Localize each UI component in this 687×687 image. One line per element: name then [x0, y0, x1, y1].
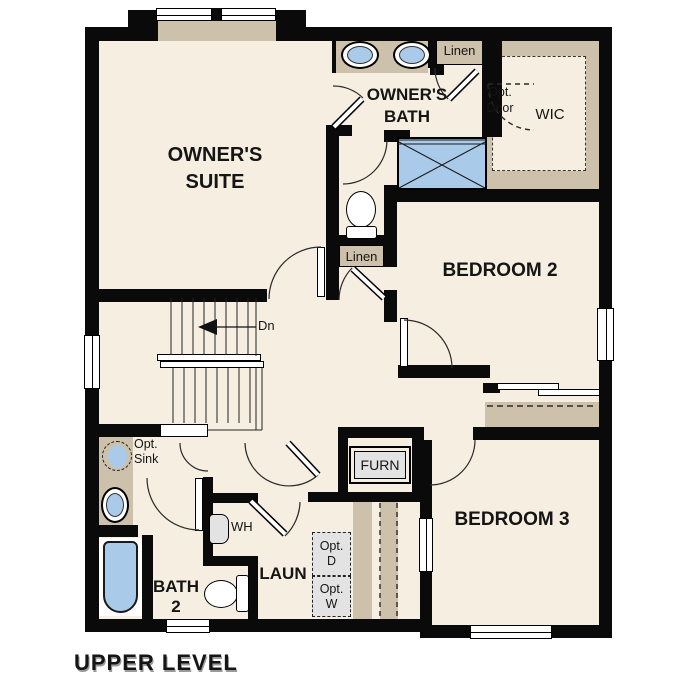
- vanity-sink-1-basin: [347, 46, 373, 64]
- wall-right-upper: [599, 27, 612, 308]
- laundry-chase-left: [353, 502, 372, 619]
- wall-bedroom2-south: [398, 365, 490, 378]
- opt-washer-label: Opt. W: [320, 582, 344, 612]
- furnace-box: FURN: [349, 446, 411, 484]
- owners-suite-label: OWNER'S SUITE: [110, 142, 320, 196]
- bedroom2-closet-shelf: [485, 402, 599, 427]
- bath2-sink-basin: [106, 493, 124, 517]
- wh-label: WH: [231, 519, 263, 535]
- wall-suite-south: [85, 289, 267, 302]
- plan-title: UPPER LEVEL: [74, 650, 374, 678]
- wall-laundry-north: [308, 492, 424, 502]
- wall-vanity-edge: [332, 41, 336, 73]
- wall-suite-east: [326, 125, 339, 300]
- laundry-chase-right: [380, 502, 398, 619]
- linen-top-label: Linen: [436, 43, 483, 59]
- closet-slider-2: [538, 389, 600, 396]
- bay-window-2: [221, 8, 276, 21]
- opt-door-label: Opt. Door: [476, 84, 524, 118]
- bedroom2-window: [597, 308, 614, 361]
- wc-toilet-tank: [346, 226, 377, 239]
- furnace-label: FURN: [361, 457, 400, 473]
- dn-label: Dn: [258, 318, 286, 334]
- wall-closet-south: [473, 427, 599, 440]
- bay-block-left: [128, 10, 158, 41]
- stair-rail-lower: [160, 361, 264, 368]
- suite-door-leaf: [317, 247, 325, 297]
- wall-stair-hall: [85, 424, 160, 437]
- stair-cased-opening: [160, 424, 208, 437]
- stair-rail-upper: [157, 354, 261, 361]
- bedroom3-label: BEDROOM 3: [412, 509, 612, 533]
- opt-dryer-label: Opt. D: [320, 539, 344, 569]
- tub: [103, 541, 138, 613]
- vanity-sink-2-basin: [399, 46, 425, 64]
- bath2-window: [166, 619, 210, 633]
- bath2-door-leaf: [195, 478, 203, 531]
- bay-mullion: [212, 8, 221, 21]
- wall-counter-south: [85, 525, 138, 537]
- bedroom3-window: [470, 625, 552, 639]
- bay-block-right: [276, 10, 306, 41]
- laundry-label: LAUN: [250, 564, 316, 584]
- bedroom2-label: BEDROOM 2: [400, 260, 600, 284]
- wall-top-right: [306, 27, 612, 41]
- bedroom2-door-leaf: [400, 318, 408, 367]
- wall-under-shower: [393, 189, 612, 202]
- left-wall-window: [84, 335, 100, 389]
- bay-window-1: [156, 8, 212, 21]
- wc-toilet-bowl: [346, 191, 376, 228]
- bay-window-sill: [156, 18, 276, 41]
- owners-bath-label: OWNER'S BATH: [345, 84, 469, 128]
- opt-sink-label: Opt. Sink: [134, 437, 178, 469]
- wall-wh-top: [212, 493, 258, 503]
- wall-furn-west: [338, 427, 348, 497]
- wall-right-lower: [599, 361, 612, 638]
- linen-hall-label: Linen: [339, 249, 384, 265]
- bath2-toilet-tank: [236, 575, 249, 612]
- opt-sink-basin: [108, 445, 127, 468]
- wall-linen-jamb: [430, 65, 444, 75]
- wall-wc-east-low: [384, 290, 397, 322]
- bath2-label: BATH 2: [140, 577, 212, 619]
- furnace-inner: FURN: [354, 451, 406, 479]
- shower: [397, 137, 487, 190]
- water-heater: [209, 514, 229, 544]
- opt-washer-box: Opt. W: [312, 576, 351, 617]
- wic-label: WIC: [525, 106, 575, 126]
- floor-plan: FURN Opt. D Opt. W: [0, 0, 687, 687]
- opt-dryer-box: Opt. D: [312, 532, 351, 576]
